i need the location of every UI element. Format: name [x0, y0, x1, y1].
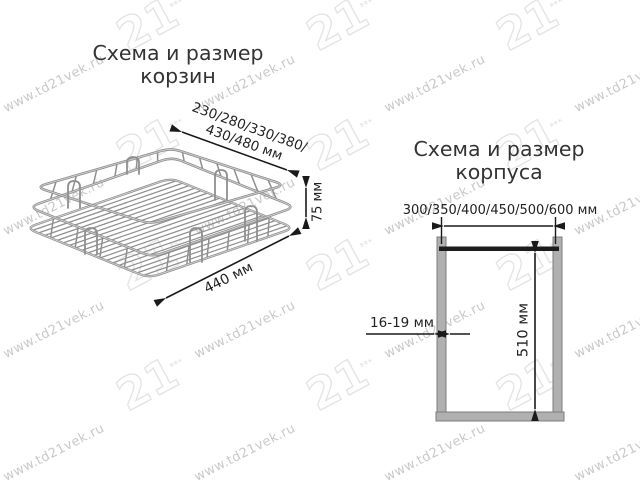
basket-depth-dim-label: 440 мм	[202, 259, 256, 297]
basket-mesh-wire	[137, 223, 282, 273]
cabinet-thickness-dim-label: 16-19 мм	[370, 315, 434, 331]
cabinet-title-line1: Схема и размер	[388, 138, 610, 161]
basket-wall-wire	[248, 223, 250, 244]
schematic-page: www.td21vek.ruwww.td21vek.ruwww.td21vek.…	[0, 0, 640, 480]
basket-wall-wire	[268, 216, 269, 237]
cabinet-width-dim-label: 300/350/400/450/500/600 мм	[403, 203, 598, 218]
cabinet-height-dim-label: 510 мм	[516, 303, 532, 357]
basket-diagram-title: Схема и размер корзин	[68, 42, 288, 88]
basket-mesh-wire	[38, 183, 183, 233]
cabinet-diagram-title: Схема и размер корпуса	[388, 138, 610, 184]
cabinet-bottom-panel	[436, 412, 564, 421]
cabinet-top-rail-bar	[439, 247, 559, 252]
basket-mesh-wire	[112, 213, 257, 263]
cabinet-right-panel	[553, 237, 562, 413]
basket-title-line2: корзин	[68, 65, 288, 88]
basket-height-dim-label: 75 мм	[311, 182, 326, 222]
basket-title-line1: Схема и размер	[68, 42, 288, 65]
basket-illustration	[31, 149, 291, 276]
basket-mesh-wire	[143, 226, 288, 276]
basket-wall-wire	[227, 230, 229, 251]
cabinet-left-panel	[437, 237, 446, 413]
cabinet-title-line2: корпуса	[388, 161, 610, 184]
basket-gallery-wire	[136, 158, 137, 170]
cabinet-illustration	[436, 237, 564, 421]
basket-mesh-wire	[131, 221, 276, 271]
